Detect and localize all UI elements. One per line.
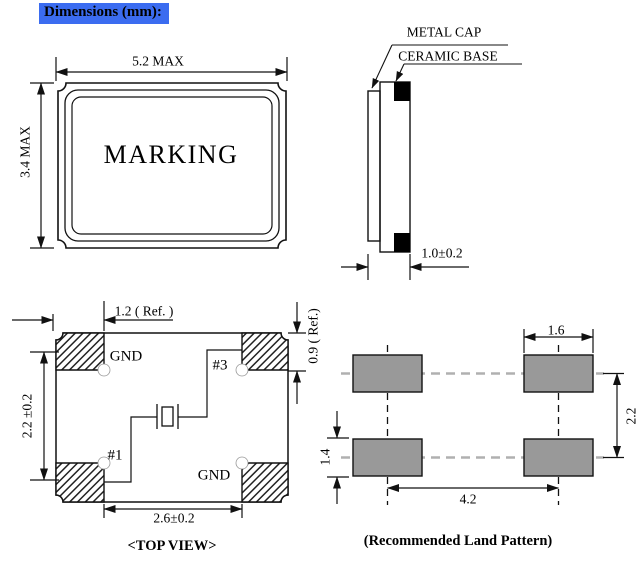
land-row-pitch-dimension — [603, 374, 624, 458]
top-view-vertical-pitch-dimension — [30, 352, 59, 480]
pad-bottom-left — [56, 463, 104, 502]
land-pad-bottom-left — [353, 439, 422, 476]
ceramic-base-label: CERAMIC BASE — [398, 49, 497, 63]
land-pad-bottom-right — [524, 439, 593, 476]
pad-bottom-right — [242, 463, 288, 502]
top-inner-span-dim-label: 2.6±0.2 — [153, 511, 194, 525]
thickness-dim-label: 1.0±0.2 — [421, 246, 462, 260]
ceramic-base-leader — [396, 64, 522, 81]
pad-top-right-label: #3 — [213, 359, 228, 374]
land-pattern — [327, 329, 624, 505]
front-width-dim-label: 5.2 MAX — [132, 54, 184, 68]
land-pad-height-dim-label: 1.4 — [318, 449, 332, 466]
pad-top-left — [56, 333, 104, 370]
land-col-pitch-dim-label: 4.2 — [460, 492, 477, 506]
ceramic-base-shape — [380, 82, 410, 252]
top-pad-width-dim-label: 1.2 ( Ref. ) — [115, 304, 174, 318]
pad-bottom-left-label: #1 — [108, 449, 123, 464]
drawing-linework — [0, 0, 643, 563]
top-view-caption: <TOP VIEW> — [128, 539, 217, 554]
package-dimensions-drawing: Dimensions (mm): 5.2 MAX 3.4 MAX MARKING… — [0, 0, 643, 563]
top-pad-height-dim-label: 0.9 ( Ref.) — [306, 308, 320, 363]
land-pads — [353, 355, 593, 476]
pad-top-left-label: GND — [110, 350, 143, 365]
top-vertical-pitch-dim-label: 2.2 ±0.2 — [20, 394, 34, 439]
front-height-dim-label: 3.4 MAX — [18, 126, 32, 178]
land-pad-width-dim-label: 1.6 — [548, 323, 565, 337]
land-pattern-caption: (Recommended Land Pattern) — [364, 534, 552, 549]
front-height-dimension — [30, 83, 54, 248]
land-pad-top-left — [353, 355, 422, 392]
top-view — [12, 301, 306, 518]
land-pad-top-right — [524, 355, 593, 392]
metal-cap-shape — [368, 91, 380, 241]
metal-cap-label: METAL CAP — [407, 25, 482, 39]
land-row-pitch-dim-label: 2.2 — [624, 408, 638, 425]
terminal-top — [394, 82, 410, 101]
terminal-bottom — [394, 233, 410, 252]
top-view-pad-height-dimension — [288, 302, 306, 404]
drawing-title: Dimensions (mm): — [39, 3, 169, 24]
pad-top-right — [242, 333, 288, 370]
pad-bottom-right-label: GND — [198, 469, 231, 484]
marking-label: MARKING — [104, 142, 239, 168]
